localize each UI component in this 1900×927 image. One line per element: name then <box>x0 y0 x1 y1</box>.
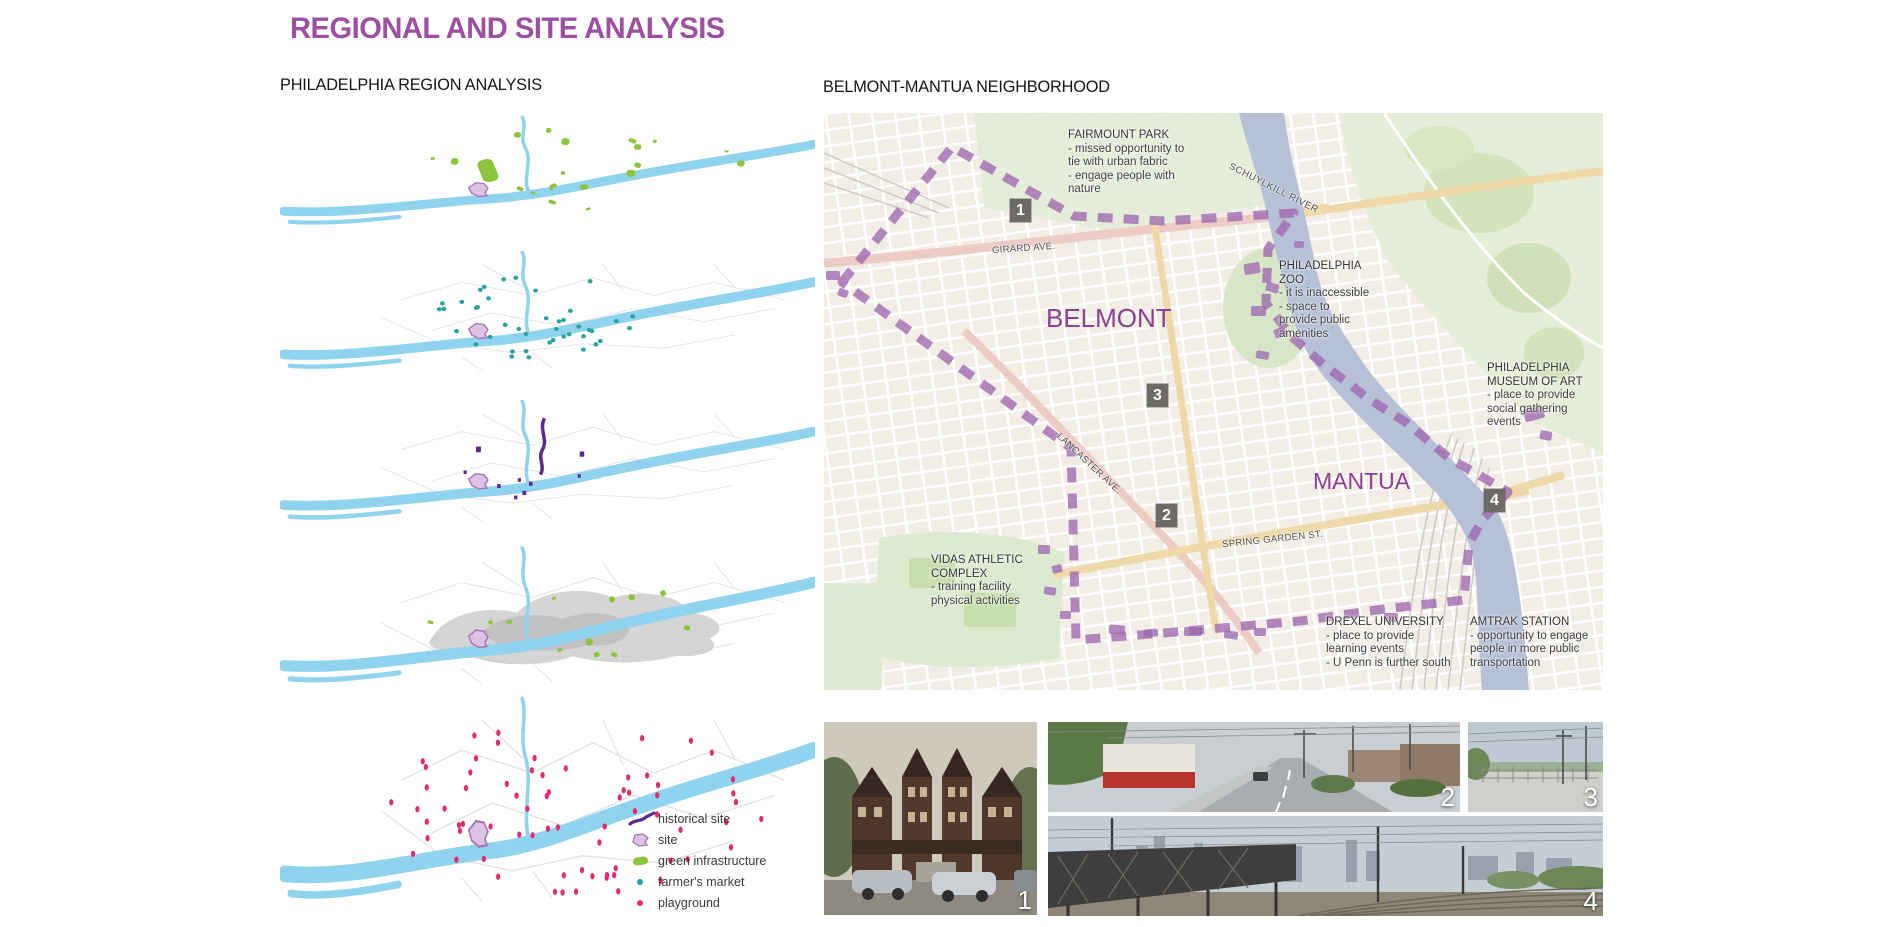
annotation-title: ZOO <box>1279 274 1369 288</box>
legend-item-farmers-market: farmer's market <box>628 871 818 892</box>
annotation-line: - space to <box>1279 301 1369 315</box>
annotation-line: - training facility <box>931 581 1023 595</box>
site-icon <box>628 832 658 848</box>
annotation-line: - place to provide <box>1487 389 1583 403</box>
annotation-fairmount-park: FAIRMOUNT PARK - missed opportunity to t… <box>1068 129 1184 197</box>
annotation-line: social gathering <box>1487 403 1583 417</box>
region-map-urban-fabric <box>280 542 815 694</box>
farmers-market-icon <box>628 874 658 890</box>
left-section-heading: PHILADELPHIA REGION ANALYSIS <box>280 75 542 95</box>
legend-label: farmer's market <box>658 875 744 889</box>
annotation-line: - U Penn is further south <box>1326 657 1451 671</box>
page-title: REGIONAL AND SITE ANALYSIS <box>290 12 725 46</box>
legend-item-playground: playground <box>628 892 818 913</box>
annotation-line: - engage people with <box>1068 170 1184 184</box>
legend: historical site site green infrastructur… <box>628 808 818 913</box>
annotation-title: PHILADELPHIA <box>1279 260 1369 274</box>
annotation-drexel-university: DREXEL UNIVERSITY - place to provide lea… <box>1326 616 1451 670</box>
annotation-line: transportation <box>1470 657 1588 671</box>
map-marker-4: 4 <box>1484 489 1505 512</box>
legend-item-historical-site: historical site <box>628 808 818 829</box>
annotation-title: COMPLEX <box>931 568 1023 582</box>
playground-icon <box>628 895 658 911</box>
annotation-museum-of-art: PHILADELPHIA MUSEUM OF ART - place to pr… <box>1487 362 1583 430</box>
legend-label: green infrastructure <box>658 854 766 868</box>
legend-label: playground <box>658 896 720 910</box>
green-infrastructure-icon <box>628 853 658 869</box>
annotation-amtrak-station: AMTRAK STATION - opportunity to engage p… <box>1470 616 1588 670</box>
photo-1-rowhouses: 1 <box>824 722 1037 915</box>
annotation-line: amenities <box>1279 328 1369 342</box>
annotation-title: FAIRMOUNT PARK <box>1068 129 1184 143</box>
annotation-line: - missed opportunity to <box>1068 143 1184 157</box>
annotation-line: physical activities <box>931 595 1023 609</box>
annotation-title: PHILADELPHIA <box>1487 362 1583 376</box>
annotation-title: DREXEL UNIVERSITY <box>1326 616 1451 630</box>
region-map-farmers-markets <box>280 247 815 379</box>
annotation-title: MUSEUM OF ART <box>1487 376 1583 390</box>
photo-3-intersection: 3 <box>1468 722 1603 812</box>
annotation-line: provide public <box>1279 314 1369 328</box>
annotation-line: - place to provide <box>1326 630 1451 644</box>
photo-number: 2 <box>1441 783 1455 811</box>
annotation-line: people in more public <box>1470 643 1588 657</box>
map-marker-1: 1 <box>1010 199 1031 222</box>
poster-root: REGIONAL AND SITE ANALYSIS PHILADELPHIA … <box>0 0 1900 927</box>
district-label-mantua: MANTUA <box>1313 468 1410 495</box>
photo-number: 4 <box>1584 887 1598 915</box>
legend-item-green-infrastructure: green infrastructure <box>628 850 818 871</box>
photo-number: 1 <box>1018 886 1032 914</box>
region-map-historical-sites <box>280 396 815 530</box>
belmont-mantua-map: BELMONT MANTUA GIRARD AVE. LANCASTER AVE… <box>824 113 1603 690</box>
annotation-line: events <box>1487 416 1583 430</box>
legend-item-site: site <box>628 829 818 850</box>
historical-site-icon <box>628 811 658 827</box>
annotation-line: - it is inaccessible <box>1279 287 1369 301</box>
legend-label: site <box>658 833 677 847</box>
district-label-belmont: BELMONT <box>1046 303 1172 334</box>
photo-4-rail-viaduct-panorama: 4 <box>1048 816 1603 916</box>
map-marker-2: 2 <box>1156 504 1177 527</box>
annotation-philadelphia-zoo: PHILADELPHIA ZOO - it is inaccessible - … <box>1279 260 1369 341</box>
right-section-heading: BELMONT-MANTUA NEIGHBORHOOD <box>823 77 1110 97</box>
legend-label: historical site <box>658 812 730 826</box>
annotation-title: AMTRAK STATION <box>1470 616 1588 630</box>
annotation-line: - opportunity to engage <box>1470 630 1588 644</box>
photo-2-street-view: 2 <box>1048 722 1460 812</box>
region-map-green-infrastructure <box>280 112 815 234</box>
annotation-line: tie with urban fabric <box>1068 156 1184 170</box>
annotation-line: learning events <box>1326 643 1451 657</box>
annotation-line: nature <box>1068 183 1184 197</box>
annotation-title: VIDAS ATHLETIC <box>931 554 1023 568</box>
photo-number: 3 <box>1584 783 1598 811</box>
map-marker-3: 3 <box>1147 384 1168 407</box>
annotation-vidas-athletic-complex: VIDAS ATHLETIC COMPLEX - training facili… <box>931 554 1023 608</box>
